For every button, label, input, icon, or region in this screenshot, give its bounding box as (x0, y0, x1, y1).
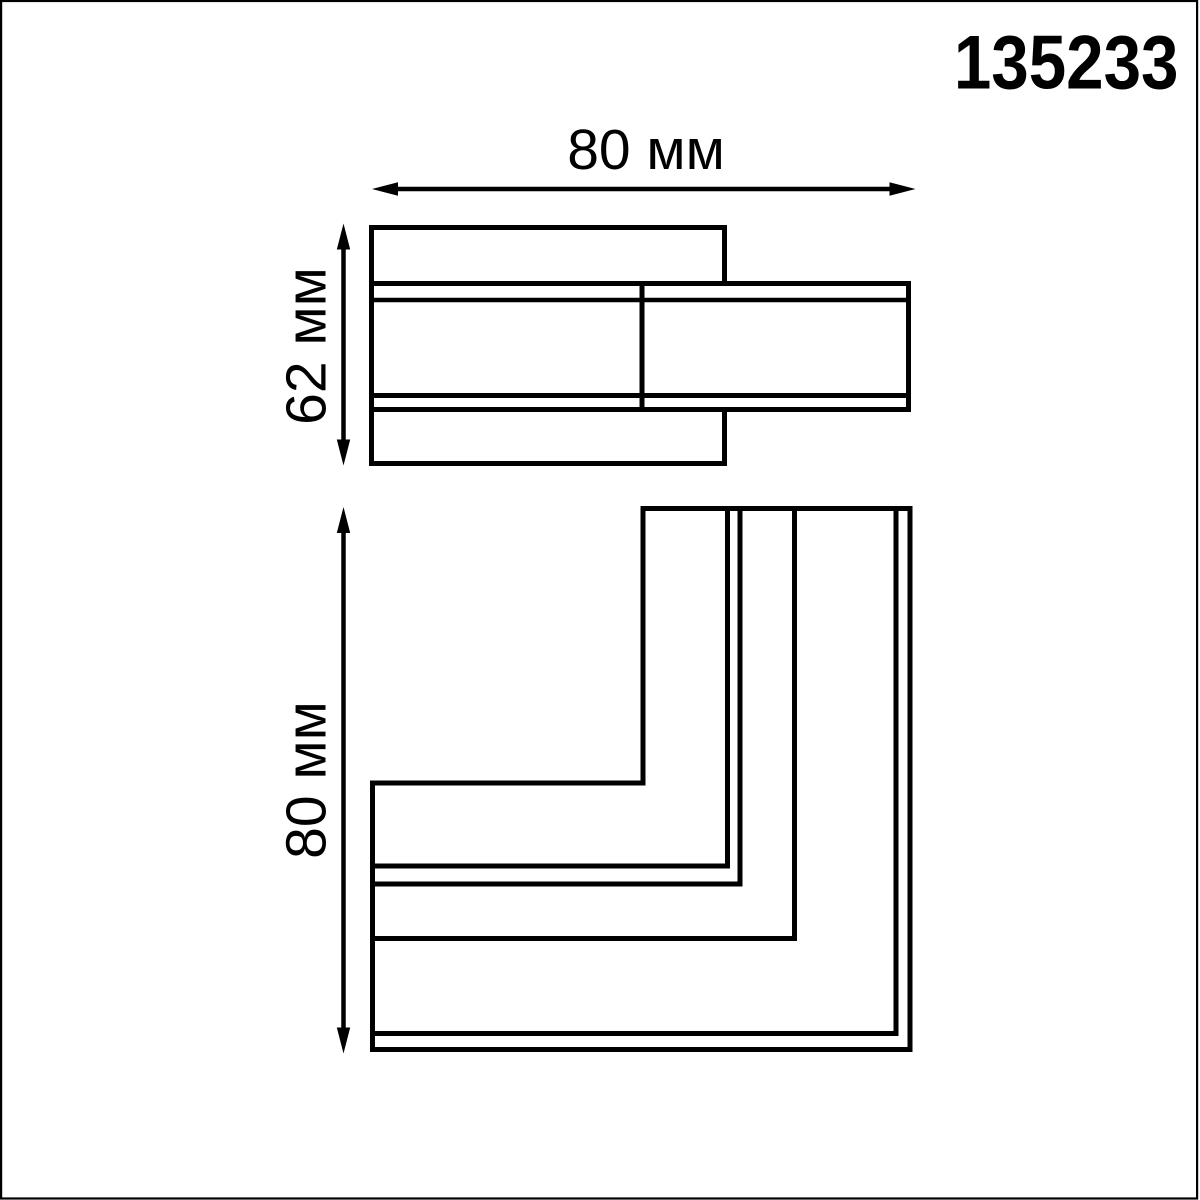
svg-text:135233: 135233 (954, 21, 1179, 106)
svg-text:80 мм: 80 мм (567, 118, 725, 182)
svg-text:80 мм: 80 мм (275, 701, 339, 859)
svg-text:62 мм: 62 мм (274, 267, 338, 425)
